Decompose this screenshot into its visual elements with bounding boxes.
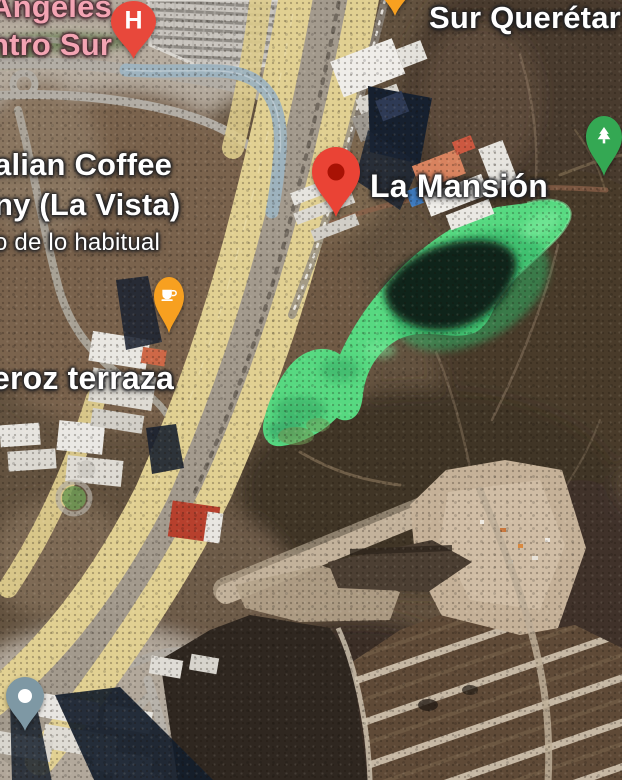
satellite-map[interactable]: Ángeles ntro Sur Sur Querétar alian Coff… xyxy=(0,0,622,780)
orange-poi-pin-shape xyxy=(373,0,417,16)
coffee-pin[interactable] xyxy=(154,277,184,333)
park-tree-pin[interactable] xyxy=(586,116,622,176)
coffee-shop-label-line2[interactable]: ny (La Vista) xyxy=(0,186,180,224)
la-mansion-label[interactable]: La Mansión xyxy=(370,166,548,206)
street-label-sur-queretaro[interactable]: Sur Querétar xyxy=(429,0,621,38)
coffee-shop-label-line1[interactable]: alian Coffee xyxy=(0,146,172,184)
orange-poi-pin-top[interactable] xyxy=(373,0,417,16)
hospital-letter-icon: H xyxy=(124,6,142,35)
coffee-shop-subtitle: o de lo habitual xyxy=(0,228,160,258)
hospital-label-line1: Ángeles xyxy=(0,0,112,26)
pin-inner-dot xyxy=(18,689,32,703)
coffee-cup-icon xyxy=(160,287,179,308)
hospital-label-line2: ntro Sur xyxy=(0,26,112,64)
pin-inner-dot xyxy=(328,163,345,180)
la-mansion-pin[interactable] xyxy=(312,147,360,217)
pine-tree-icon xyxy=(596,126,613,150)
red-place-pin-shape xyxy=(312,147,360,217)
generic-pin-shape xyxy=(6,677,44,731)
hospital-pin[interactable]: H xyxy=(111,1,156,59)
terraza-label[interactable]: eroz terraza xyxy=(0,358,174,398)
hospital-label[interactable]: Ángeles ntro Sur xyxy=(0,0,112,64)
generic-place-pin[interactable] xyxy=(6,677,44,731)
